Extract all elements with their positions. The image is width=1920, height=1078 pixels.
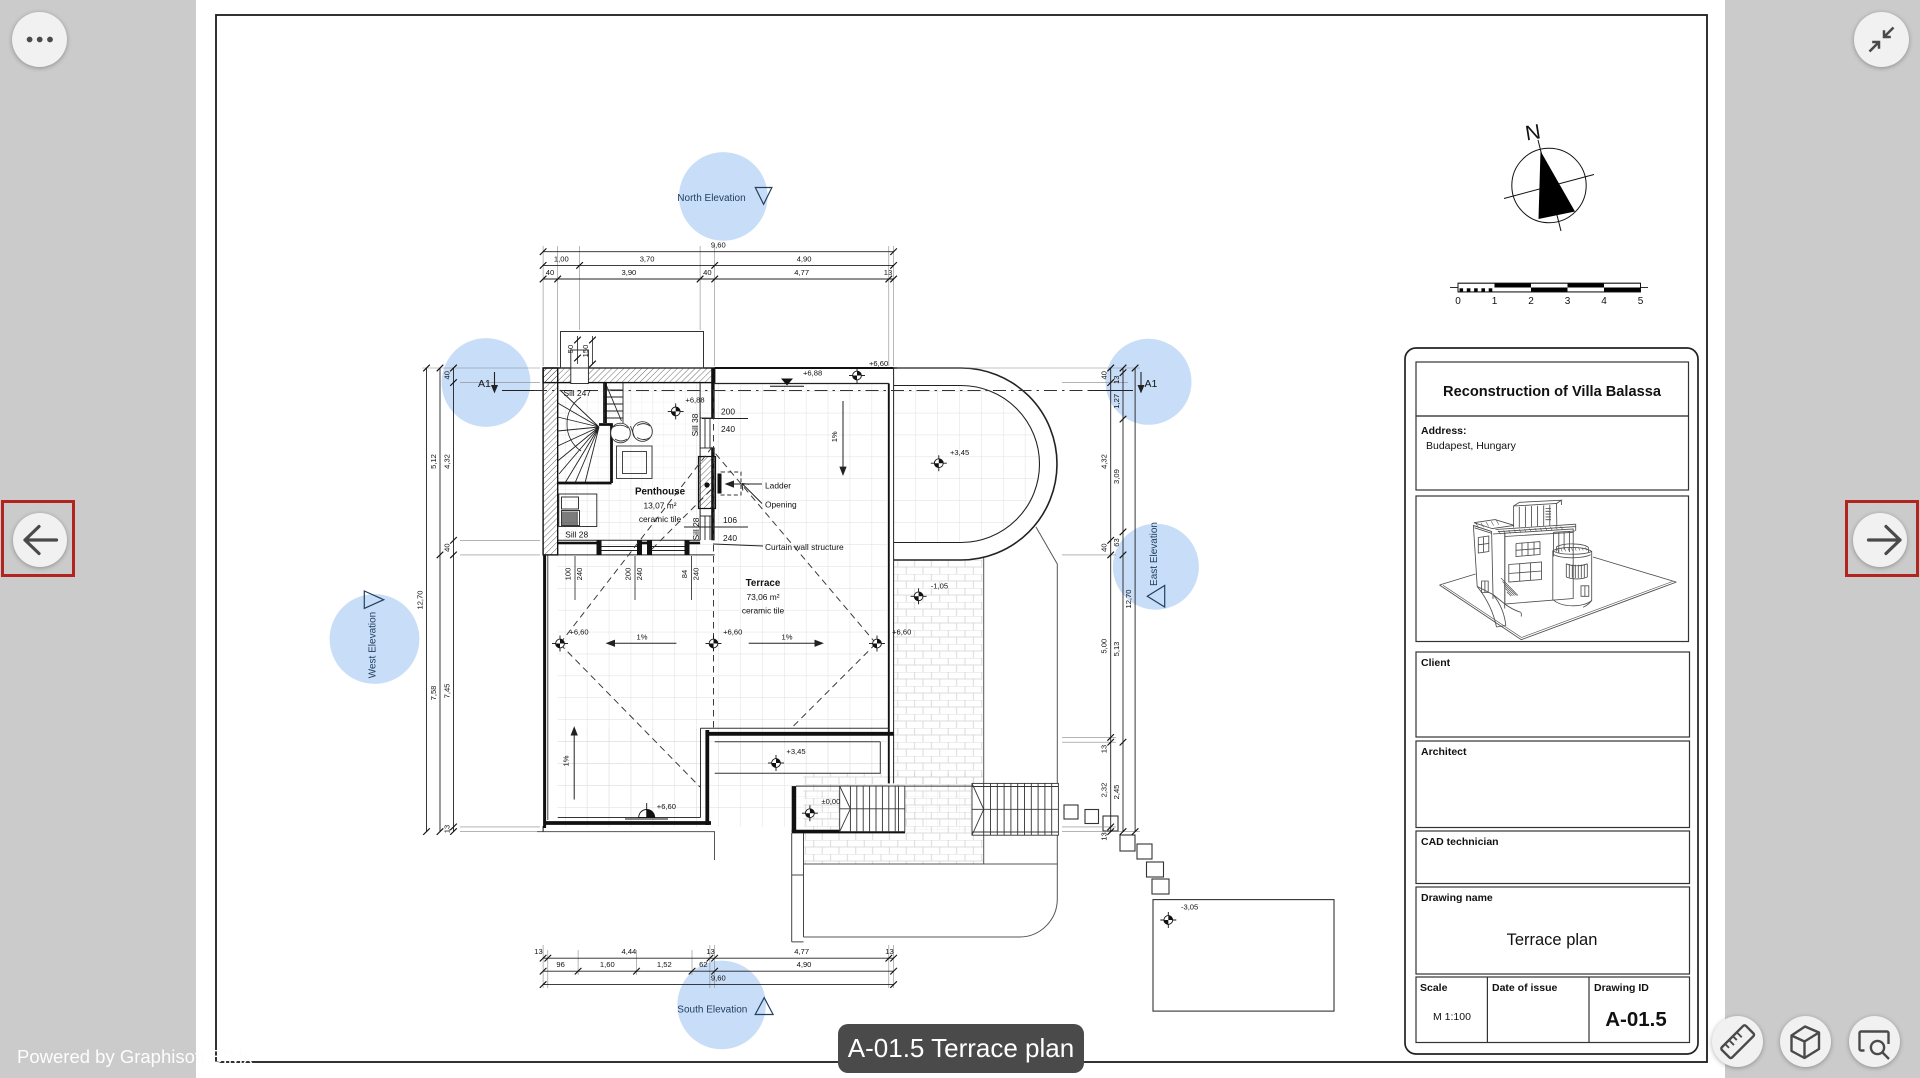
svg-text:2,32: 2,32 <box>1100 783 1109 798</box>
svg-text:4,32: 4,32 <box>443 454 452 469</box>
svg-text:Curtain wall structure: Curtain wall structure <box>765 542 844 552</box>
svg-text:13: 13 <box>443 825 452 833</box>
svg-text:+6,60: +6,60 <box>657 802 676 811</box>
svg-text:+6,60: +6,60 <box>869 359 888 368</box>
svg-text:3: 3 <box>1565 296 1571 307</box>
svg-text:7,58: 7,58 <box>429 686 438 701</box>
svg-text:ceramic tile: ceramic tile <box>742 606 785 616</box>
svg-text:Sill 28: Sill 28 <box>565 530 588 540</box>
svg-text:13: 13 <box>1112 376 1121 384</box>
svg-text:South Elevation: South Elevation <box>677 1005 747 1016</box>
svg-text:North Elevation: North Elevation <box>677 193 745 204</box>
svg-text:+3,45: +3,45 <box>950 448 969 457</box>
svg-text:Drawing ID: Drawing ID <box>1594 982 1649 994</box>
svg-text:A1: A1 <box>1145 378 1158 390</box>
svg-text:106: 106 <box>723 515 737 525</box>
svg-text:4,90: 4,90 <box>797 960 812 969</box>
svg-text:200: 200 <box>624 568 633 581</box>
svg-text:Terrace: Terrace <box>746 578 781 589</box>
svg-text:A1: A1 <box>478 378 491 390</box>
svg-text:96: 96 <box>556 960 564 969</box>
svg-text:4,77: 4,77 <box>794 947 809 956</box>
svg-text:84: 84 <box>680 570 689 578</box>
svg-text:1%: 1% <box>562 755 571 766</box>
svg-text:Opening: Opening <box>765 500 797 510</box>
svg-text:ceramic tile: ceramic tile <box>639 514 682 524</box>
svg-text:+6,60: +6,60 <box>723 628 742 637</box>
svg-text:Sill 38: Sill 38 <box>690 413 700 436</box>
svg-text:150: 150 <box>581 345 590 358</box>
svg-text:+3,45: +3,45 <box>786 747 805 756</box>
svg-text:3,70: 3,70 <box>640 254 655 263</box>
svg-text:9,60: 9,60 <box>711 974 726 983</box>
svg-text:240: 240 <box>723 533 737 543</box>
svg-text:-3,05: -3,05 <box>1181 903 1198 912</box>
svg-text:Sill 28: Sill 28 <box>691 517 701 540</box>
svg-text:A-01.5: A-01.5 <box>1605 1008 1667 1031</box>
svg-text:5,00: 5,00 <box>1100 639 1109 654</box>
svg-text:1%: 1% <box>830 431 839 442</box>
svg-text:+6,88: +6,88 <box>803 369 822 378</box>
svg-text:63: 63 <box>1112 538 1121 546</box>
svg-text:5,12: 5,12 <box>429 454 438 469</box>
svg-text:40: 40 <box>1100 543 1109 551</box>
svg-text:M 1:100: M 1:100 <box>1433 1011 1471 1023</box>
svg-text:Drawing name: Drawing name <box>1421 892 1493 904</box>
svg-text:1,00: 1,00 <box>554 254 569 263</box>
svg-text:40: 40 <box>443 371 452 379</box>
svg-text:50: 50 <box>566 345 575 353</box>
svg-text:12,70: 12,70 <box>1124 589 1133 608</box>
svg-text:9,60: 9,60 <box>711 241 726 250</box>
svg-text:12,70: 12,70 <box>416 590 425 609</box>
svg-text:62: 62 <box>699 960 707 969</box>
svg-text:40: 40 <box>703 268 711 277</box>
svg-text:13: 13 <box>534 947 542 956</box>
svg-text:Terrace plan: Terrace plan <box>1507 931 1598 949</box>
svg-text:5,13: 5,13 <box>1112 642 1121 657</box>
svg-text:13,07 m²: 13,07 m² <box>643 501 676 511</box>
svg-text:3,09: 3,09 <box>1112 469 1121 484</box>
svg-text:1%: 1% <box>782 633 793 642</box>
svg-text:240: 240 <box>575 568 584 581</box>
svg-text:40: 40 <box>443 543 452 551</box>
svg-text:Reconstruction of Villa Balass: Reconstruction of Villa Balassa <box>1443 384 1662 400</box>
svg-text:Penthouse: Penthouse <box>635 487 686 498</box>
svg-text:Address:: Address: <box>1421 425 1467 437</box>
svg-text:7,45: 7,45 <box>443 684 452 699</box>
svg-text:13: 13 <box>885 947 893 956</box>
svg-text:Budapest, Hungary: Budapest, Hungary <box>1426 440 1517 452</box>
svg-text:Client: Client <box>1421 657 1451 669</box>
svg-text:1,27: 1,27 <box>1112 394 1121 409</box>
svg-text:240: 240 <box>635 568 644 581</box>
svg-text:13: 13 <box>1100 745 1109 753</box>
svg-text:4: 4 <box>1601 296 1607 307</box>
svg-text:4,77: 4,77 <box>794 268 809 277</box>
svg-text:Architect: Architect <box>1421 746 1467 758</box>
svg-text:3,90: 3,90 <box>622 268 637 277</box>
svg-text:240: 240 <box>692 568 701 581</box>
svg-text:Scale: Scale <box>1420 982 1448 994</box>
svg-text:5: 5 <box>1638 296 1644 307</box>
svg-text:4,44: 4,44 <box>622 947 637 956</box>
svg-text:East Elevation: East Elevation <box>1149 522 1160 586</box>
svg-text:4,90: 4,90 <box>797 254 812 263</box>
svg-text:13: 13 <box>1100 832 1109 840</box>
svg-text:13: 13 <box>884 268 892 277</box>
svg-text:1: 1 <box>1492 296 1498 307</box>
svg-text:1,60: 1,60 <box>600 960 615 969</box>
svg-text:40: 40 <box>1100 371 1109 379</box>
svg-text:Date of issue: Date of issue <box>1492 982 1558 994</box>
svg-text:200: 200 <box>721 407 735 417</box>
svg-text:+6,60: +6,60 <box>892 628 911 637</box>
svg-text:73,06 m²: 73,06 m² <box>746 592 779 602</box>
svg-text:West Elevation: West Elevation <box>368 612 379 679</box>
svg-text:4,32: 4,32 <box>1100 454 1109 469</box>
svg-text:CAD technician: CAD technician <box>1421 836 1499 848</box>
svg-text:±0,00: ±0,00 <box>821 797 840 806</box>
svg-text:1%: 1% <box>637 633 648 642</box>
svg-text:40: 40 <box>546 268 554 277</box>
svg-text:13: 13 <box>706 947 714 956</box>
svg-text:1,52: 1,52 <box>657 960 672 969</box>
svg-text:N: N <box>1524 120 1543 145</box>
svg-text:240: 240 <box>721 424 735 434</box>
svg-text:0: 0 <box>1455 296 1461 307</box>
svg-text:-1,05: -1,05 <box>931 582 948 591</box>
svg-text:2: 2 <box>1528 296 1534 307</box>
svg-text:+6,60: +6,60 <box>569 628 588 637</box>
svg-text:Sill 247: Sill 247 <box>564 388 592 398</box>
svg-text:+6,88: +6,88 <box>685 396 704 405</box>
svg-text:Ladder: Ladder <box>765 481 791 491</box>
svg-text:100: 100 <box>564 568 573 581</box>
svg-text:2,45: 2,45 <box>1112 785 1121 800</box>
